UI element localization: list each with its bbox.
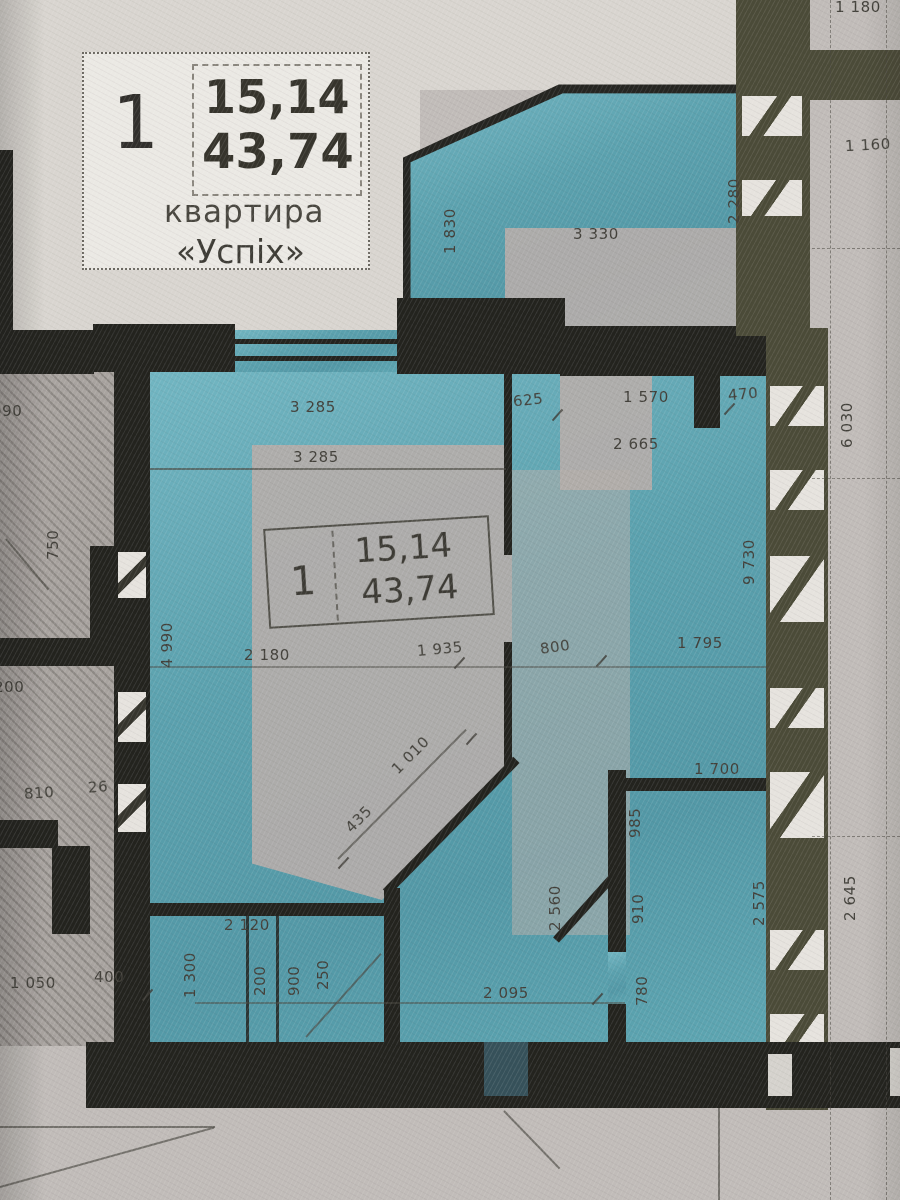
wall-tr-opening-1: [742, 96, 802, 136]
dim-label: 800: [539, 638, 571, 657]
dim-label: 810: [24, 785, 55, 802]
dim-label: 2 665: [613, 437, 659, 452]
dim-label: 250: [316, 944, 331, 990]
window-top: [235, 330, 397, 372]
dim-label: 470: [727, 386, 759, 404]
dim-label: 1 935: [416, 640, 463, 659]
dim-label: 4 990: [160, 598, 175, 668]
wall-top: [93, 324, 235, 372]
dim-label: 3 330: [573, 227, 619, 242]
dim-label: 2 645: [843, 843, 858, 921]
window-bottom-2: [768, 1054, 792, 1096]
wall-left-opening-1: [118, 552, 146, 598]
neighbor-wall-2: [90, 546, 116, 646]
partition-hall-upper: [504, 373, 512, 555]
wall-edge-topleft: [0, 150, 13, 336]
dim-label: 1 700: [694, 762, 740, 777]
wall-tr-opening-2: [742, 180, 802, 216]
dim-label: 2 095: [483, 986, 529, 1001]
wall-top-left-row: [0, 330, 94, 374]
unit-label-box: 1 15,14 43,74: [263, 515, 495, 629]
legend-unit-number: 1: [112, 86, 159, 160]
partition-bath-vertical: [608, 770, 626, 1060]
wall-right-opening-6: [770, 930, 824, 970]
dim-label: 2 560: [548, 855, 563, 931]
wall-left-opening-3: [118, 784, 146, 832]
dim-label: 1 830: [443, 188, 458, 254]
dim-label: 780: [635, 958, 650, 1006]
dim-label: 26: [88, 779, 109, 795]
legend-living-area: 15,14: [204, 70, 350, 124]
legend-caption-line2: «Успіх»: [176, 232, 305, 271]
dash-line-right-1: [830, 0, 831, 1200]
wc-wall-right: [384, 888, 400, 1053]
dash-line-right-h1: [812, 248, 900, 249]
wall-right-opening-4: [770, 688, 824, 728]
wall-right-opening-1: [770, 386, 824, 426]
partition-hall-lower: [504, 642, 512, 768]
partition-horizontal: [626, 778, 774, 791]
wall-right-opening-2: [770, 470, 824, 510]
dim-label: 1 795: [677, 636, 723, 651]
unit-label-divider: [331, 531, 338, 621]
wall-left-opening-2: [118, 692, 146, 742]
wall-right-opening-3: [770, 556, 824, 622]
window-bottom-1: [484, 1042, 528, 1096]
window-bottom-3: [890, 1048, 900, 1096]
dim-label: 985: [628, 786, 643, 838]
dim-label: 750: [46, 478, 61, 560]
dim-label: 2 575: [752, 850, 767, 926]
dim-label: 2 120: [224, 918, 270, 933]
unit-number: 1: [289, 558, 317, 605]
dim-label: 625: [512, 391, 544, 409]
partition-entry: [694, 372, 720, 428]
dim-label: 400: [94, 970, 124, 985]
wall-top-right-vertical: [736, 0, 810, 336]
dim-label: 200: [0, 680, 24, 695]
wc-partition-1: [246, 916, 249, 1048]
dim-label: 2 280: [727, 158, 742, 224]
neighbor-wall-3: [0, 820, 58, 848]
legend-total-area: 43,74: [202, 124, 354, 180]
door-opening-bath: [608, 952, 626, 1004]
line-below-plan: [718, 1108, 720, 1200]
dim-label: 900: [287, 950, 302, 996]
dim-label: 3 285: [293, 450, 339, 465]
dash-line-right-h3: [812, 836, 900, 837]
legend-caption-line1: квартира: [164, 194, 325, 230]
dim-label: 990: [0, 404, 22, 419]
dash-line-right-h2: [812, 478, 900, 479]
dim-label: 1 180: [835, 0, 881, 15]
diag-bottom-center: [503, 1110, 560, 1169]
dim-line-middle: [150, 666, 770, 668]
dim-label: 910: [631, 876, 646, 924]
dim-line-room-top: [150, 468, 506, 470]
dim-label: 2 180: [244, 648, 290, 663]
dim-label: 1 050: [10, 976, 56, 991]
legend-box: 1 15,14 43,74 квартира «Успіх»: [82, 52, 370, 270]
dim-label: 9 730: [742, 505, 757, 585]
window-top-line1: [235, 339, 397, 344]
window-top-line2: [235, 356, 397, 361]
floor-plan-photo: 1 180 1 160 1 830 3 330 2 280 3 285 3 28…: [0, 0, 900, 1200]
wall-right-opening-5: [770, 772, 824, 838]
diag-bottom-left: [0, 1127, 214, 1188]
unit-living-area: 15,14: [353, 526, 453, 572]
wc-partition-2: [276, 916, 279, 1048]
wc-wall-top: [148, 903, 396, 916]
line-bottom-left: [0, 1126, 215, 1128]
dim-label: 200: [253, 950, 268, 996]
dim-label: 6 030: [840, 378, 855, 448]
wall-balcony-base: [397, 298, 565, 374]
dim-label: 3 285: [290, 400, 336, 415]
dim-line-bottom: [195, 1002, 625, 1004]
neighbor-wall-4: [52, 846, 90, 934]
dim-label: 1 570: [623, 390, 669, 405]
dim-label: 1 160: [845, 137, 892, 154]
unit-total-area: 43,74: [360, 567, 460, 613]
dash-line-right-2: [886, 0, 887, 1200]
dim-label: 1 300: [183, 936, 198, 998]
